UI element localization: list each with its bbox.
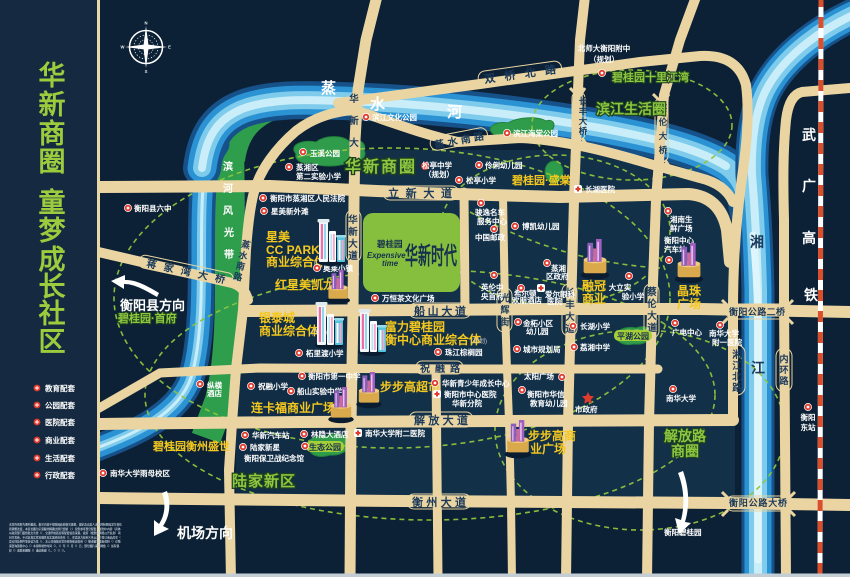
svg-text:滨江生活圈: 滨江生活圈: [596, 101, 666, 117]
svg-text:街: 街: [499, 316, 509, 327]
svg-text:步步高商: 步步高商: [528, 428, 576, 443]
svg-text:滨江文化公园: 滨江文化公园: [372, 112, 417, 122]
svg-text:华: 华: [348, 214, 358, 226]
svg-text:玉溪公园: 玉溪公园: [310, 148, 340, 158]
svg-text:教育配套: 教育配套: [44, 383, 75, 393]
svg-text:步步高超市: 步步高超市: [380, 379, 440, 394]
svg-text:长湖医院: 长湖医院: [585, 184, 615, 194]
svg-text:碧桂园·盛棠: 碧桂园·盛棠: [511, 173, 572, 187]
svg-text:以政府部门最终批文为准（）、交通学校商业等配套信息来源，政府: 以政府部门最终批文为准（）、交通学校商业等配套信息来源，政府（规划或网络公开信息…: [9, 531, 121, 535]
svg-text:林隐大酒店: 林隐大酒店: [311, 429, 349, 439]
svg-text:博凯幼儿园: 博凯幼儿园: [522, 221, 560, 231]
svg-text:陆家新星: 陆家新星: [250, 442, 280, 452]
svg-text:生态公园: 生态公园: [309, 442, 341, 452]
svg-text:解放路: 解放路: [664, 428, 707, 444]
svg-text:新: 新: [348, 226, 358, 238]
svg-text:松亭小学: 松亭小学: [466, 175, 496, 185]
svg-text:商: 商: [39, 119, 66, 149]
svg-text:医院配套: 医院配套: [45, 417, 75, 427]
svg-text:梦: 梦: [39, 216, 66, 246]
svg-text:蒸: 蒸: [321, 79, 336, 97]
svg-text:衡阳市蒸湘区人民法院: 衡阳市蒸湘区人民法院: [270, 193, 345, 203]
svg-text:东站: 东站: [801, 422, 816, 432]
svg-text:武: 武: [802, 127, 816, 143]
svg-text:商圈: 商圈: [671, 443, 699, 459]
svg-text:而调整改变，本区位图为示意图非精确比例尺绘制（：）仅供参考部: 而调整改变，本区位图为示意图非精确比例尺绘制（：）仅供参考部分配套，规划中内容（…: [9, 527, 121, 531]
svg-text:荔湘中学: 荔湘中学: [579, 342, 610, 352]
svg-text:光: 光: [223, 226, 234, 239]
svg-text:衡阳保卫战纪念馆: 衡阳保卫战纪念馆: [244, 453, 304, 463]
svg-text:附一医院: 附一医院: [712, 337, 742, 347]
svg-text:衡阳市中心医院: 衡阳市中心医院: [444, 389, 497, 399]
svg-text:大: 大: [348, 238, 358, 250]
svg-text:南华大学: 南华大学: [709, 328, 739, 338]
svg-text:伦: 伦: [659, 117, 668, 127]
svg-text:柘里渡小学: 柘里渡小学: [305, 348, 344, 358]
svg-text:S: S: [145, 69, 148, 74]
svg-text:衡阳公路二桥: 衡阳公路二桥: [729, 306, 786, 317]
svg-text:(规划): (规划): [471, 337, 487, 345]
svg-text:内: 内: [779, 353, 788, 364]
svg-text:服务中心: 服务中心: [477, 216, 507, 226]
svg-text:广电中心: 广电中心: [672, 327, 702, 337]
svg-text:高: 高: [802, 230, 816, 246]
svg-text:大: 大: [565, 311, 575, 323]
svg-text:碧桂园·首府: 碧桂园·首府: [117, 311, 177, 325]
svg-text:路: 路: [779, 375, 789, 386]
svg-text:市政府: 市政府: [575, 404, 598, 414]
svg-text:大: 大: [647, 310, 657, 322]
svg-text:（规划）: （规划）: [424, 169, 454, 179]
svg-text:长: 长: [39, 272, 67, 302]
svg-text:华新时代: 华新时代: [405, 242, 457, 270]
svg-text:丰: 丰: [579, 106, 588, 116]
svg-text:商业配套: 商业配套: [45, 435, 75, 445]
svg-text:伶俐幼儿园: 伶俐幼儿园: [484, 160, 523, 170]
svg-text:长: 长: [579, 96, 588, 106]
svg-text:祝融路: 祝融路: [420, 362, 461, 375]
svg-text:蒸湘区: 蒸湘区: [296, 162, 319, 172]
svg-text:验小学: 验小学: [622, 291, 645, 301]
svg-text:生活配套: 生活配套: [45, 453, 75, 463]
svg-text:衡阳县方向: 衡阳县方向: [120, 298, 185, 313]
svg-text:华新分院: 华新分院: [452, 398, 482, 408]
svg-text:卖合同及附件等协议为准（）、本公司保留对宣传资料修改权利（）: 卖合同及附件等协议为准（）、本公司保留对宣传资料修改权利（）敬请留意最新资料（）…: [8, 540, 121, 544]
svg-text:星美新外滩: 星美新外滩: [271, 206, 309, 216]
svg-text:江: 江: [751, 360, 765, 376]
svg-text:星美: 星美: [266, 229, 291, 244]
svg-text:新: 新: [349, 115, 359, 127]
svg-text:河: 河: [447, 103, 462, 121]
svg-text:路: 路: [732, 382, 742, 394]
svg-text:碧桂园: 碧桂园: [376, 239, 403, 249]
svg-text:南华大学雨母校区: 南华大学雨母校区: [110, 468, 170, 478]
svg-text:风: 风: [223, 205, 233, 217]
svg-text:大: 大: [349, 137, 359, 149]
svg-text:辉: 辉: [500, 304, 509, 315]
svg-text:衡阳市华信: 衡阳市华信: [527, 389, 565, 399]
svg-text:广: 广: [802, 178, 816, 194]
svg-text:北: 北: [732, 371, 742, 383]
svg-text:衡阳中心: 衡阳中心: [664, 235, 694, 245]
svg-text:铁: 铁: [804, 287, 818, 303]
svg-text:骏逸名车: 骏逸名车: [475, 207, 505, 217]
svg-text:松亭中学: 松亭中学: [422, 160, 452, 170]
svg-text:第二实验小学: 第二实验小学: [296, 171, 341, 181]
svg-text:鲜广场: 鲜广场: [670, 223, 693, 233]
svg-text:欢朋酒店: 欢朋酒店: [511, 295, 542, 305]
svg-text:道: 道: [348, 250, 358, 262]
svg-text:碧桂园衡州盛世: 碧桂园衡州盛世: [152, 439, 230, 453]
svg-text:红星美凯龙: 红星美凯龙: [275, 277, 335, 292]
svg-text:滨: 滨: [223, 160, 233, 173]
svg-text:央首府: 央首府: [481, 291, 504, 301]
svg-text:请咨询销售中心（）本资料制作时间（）、（）年（）月（）日，部: 请咨询销售中心（）本资料制作时间（）、（）年（）月（）日，部分图片来源网络（）如…: [9, 544, 119, 548]
svg-text:商业: 商业: [582, 291, 606, 306]
svg-text:城市规划局: 城市规划局: [523, 344, 561, 354]
svg-text:湘: 湘: [750, 234, 764, 250]
svg-text:带: 带: [224, 248, 234, 261]
svg-text:衡中心商业综合体: 衡中心商业综合体: [385, 332, 482, 347]
svg-text:陆家新区: 陆家新区: [232, 472, 296, 490]
svg-text:行政配套: 行政配套: [44, 470, 75, 480]
svg-text:英伦中: 英伦中: [481, 282, 504, 292]
svg-text:区政府: 区政府: [546, 271, 569, 281]
svg-text:区: 区: [39, 327, 66, 357]
svg-text:江: 江: [732, 360, 742, 372]
svg-text:N: N: [144, 21, 147, 26]
svg-text:业广场: 业广场: [530, 441, 566, 456]
svg-text:蔡: 蔡: [646, 286, 657, 298]
svg-text:权（）请联系删除（）谨此致谢（）。（）（）（）。: 权（）请联系删除（）谨此致谢（）。（）（）（）。: [8, 548, 67, 552]
svg-text:华新商圈: 华新商圈: [345, 157, 417, 176]
svg-text:华: 华: [349, 93, 359, 105]
svg-text:华: 华: [39, 60, 66, 91]
svg-text:伦: 伦: [647, 298, 657, 310]
svg-text:北师大衡阳附中: 北师大衡阳附中: [578, 43, 631, 53]
svg-text:目开发商，不对其真实性准确性及实现承担责任（）、买卖双方权利: 目开发商，不对其真实性准确性及实现承担责任（）、买卖双方权利义务以双方签订商品房…: [9, 535, 121, 539]
svg-text:连卡福商业广场: 连卡福商业广场: [251, 400, 335, 415]
svg-text:平湖公园: 平湖公园: [617, 331, 649, 341]
svg-text:晶珠: 晶珠: [677, 283, 702, 298]
svg-text:新: 新: [39, 89, 66, 120]
svg-text:大立实: 大立实: [609, 282, 632, 292]
svg-text:W: W: [121, 45, 125, 50]
svg-text:大: 大: [579, 116, 588, 126]
svg-text:衡阳县六中: 衡阳县六中: [134, 203, 172, 213]
svg-text:水: 水: [370, 95, 386, 113]
svg-text:教育幼儿园: 教育幼儿园: [529, 398, 568, 408]
svg-text:桥: 桥: [659, 145, 668, 155]
svg-text:酒店: 酒店: [207, 388, 222, 398]
svg-text:南华大学: 南华大学: [666, 393, 696, 403]
svg-text:华新汽车站: 华新汽车站: [252, 430, 290, 440]
svg-text:E: E: [168, 45, 171, 50]
svg-text:幼儿园: 幼儿园: [526, 326, 549, 336]
svg-text:富力碧桂园: 富力碧桂园: [385, 319, 445, 334]
svg-text:time: time: [382, 259, 399, 268]
svg-text:衡阳公路大桥: 衡阳公路大桥: [729, 497, 788, 508]
svg-text:华新青少年成长中心: 华新青少年成长中心: [442, 378, 510, 388]
svg-text:成: 成: [39, 245, 66, 275]
svg-text:银泰城: 银泰城: [259, 310, 295, 325]
svg-text:圈: 圈: [39, 147, 66, 177]
svg-text:公园配套: 公园配套: [45, 400, 75, 410]
svg-text:湘南生: 湘南生: [670, 214, 693, 224]
svg-text:太阳广场: 太阳广场: [524, 371, 554, 381]
svg-text:祝融小学: 祝融小学: [258, 381, 288, 391]
svg-text:长湖小学: 长湖小学: [580, 321, 610, 331]
svg-text:湘: 湘: [732, 349, 742, 361]
svg-text:童: 童: [39, 187, 66, 218]
svg-text:衡阳: 衡阳: [801, 412, 816, 422]
svg-text:广场: 广场: [677, 296, 701, 311]
svg-text:医院: 医院: [547, 296, 562, 306]
svg-text:滨江海棠公园: 滨江海棠公园: [513, 128, 558, 138]
svg-text:本宣传资料为要约邀请，相关内容不排除因政府相关规划、规定及出: 本宣传资料为要约邀请，相关内容不排除因政府相关规划、规定及出卖人未能控制原因发生…: [8, 523, 122, 527]
svg-text:碧桂园十里江湾: 碧桂园十里江湾: [611, 70, 689, 84]
svg-text:万恒茶文化广场: 万恒茶文化广场: [381, 293, 435, 303]
svg-text:中国邮政: 中国邮政: [475, 232, 505, 242]
svg-text:环: 环: [779, 365, 788, 375]
svg-text:（规划）: （规划）: [589, 54, 619, 64]
svg-text:社: 社: [39, 298, 66, 329]
svg-text:南华大学附二医院: 南华大学附二医院: [365, 428, 425, 438]
svg-text:桥: 桥: [579, 126, 588, 136]
svg-text:河: 河: [223, 183, 233, 195]
svg-text:融冠: 融冠: [582, 278, 606, 293]
svg-text:丰: 丰: [565, 299, 575, 311]
svg-text:珠江棕榈园: 珠江棕榈园: [445, 347, 483, 357]
svg-text:衡阳市第一中学: 衡阳市第一中学: [308, 371, 361, 381]
svg-text:大: 大: [659, 131, 668, 141]
svg-text:机场方向: 机场方向: [177, 525, 233, 541]
